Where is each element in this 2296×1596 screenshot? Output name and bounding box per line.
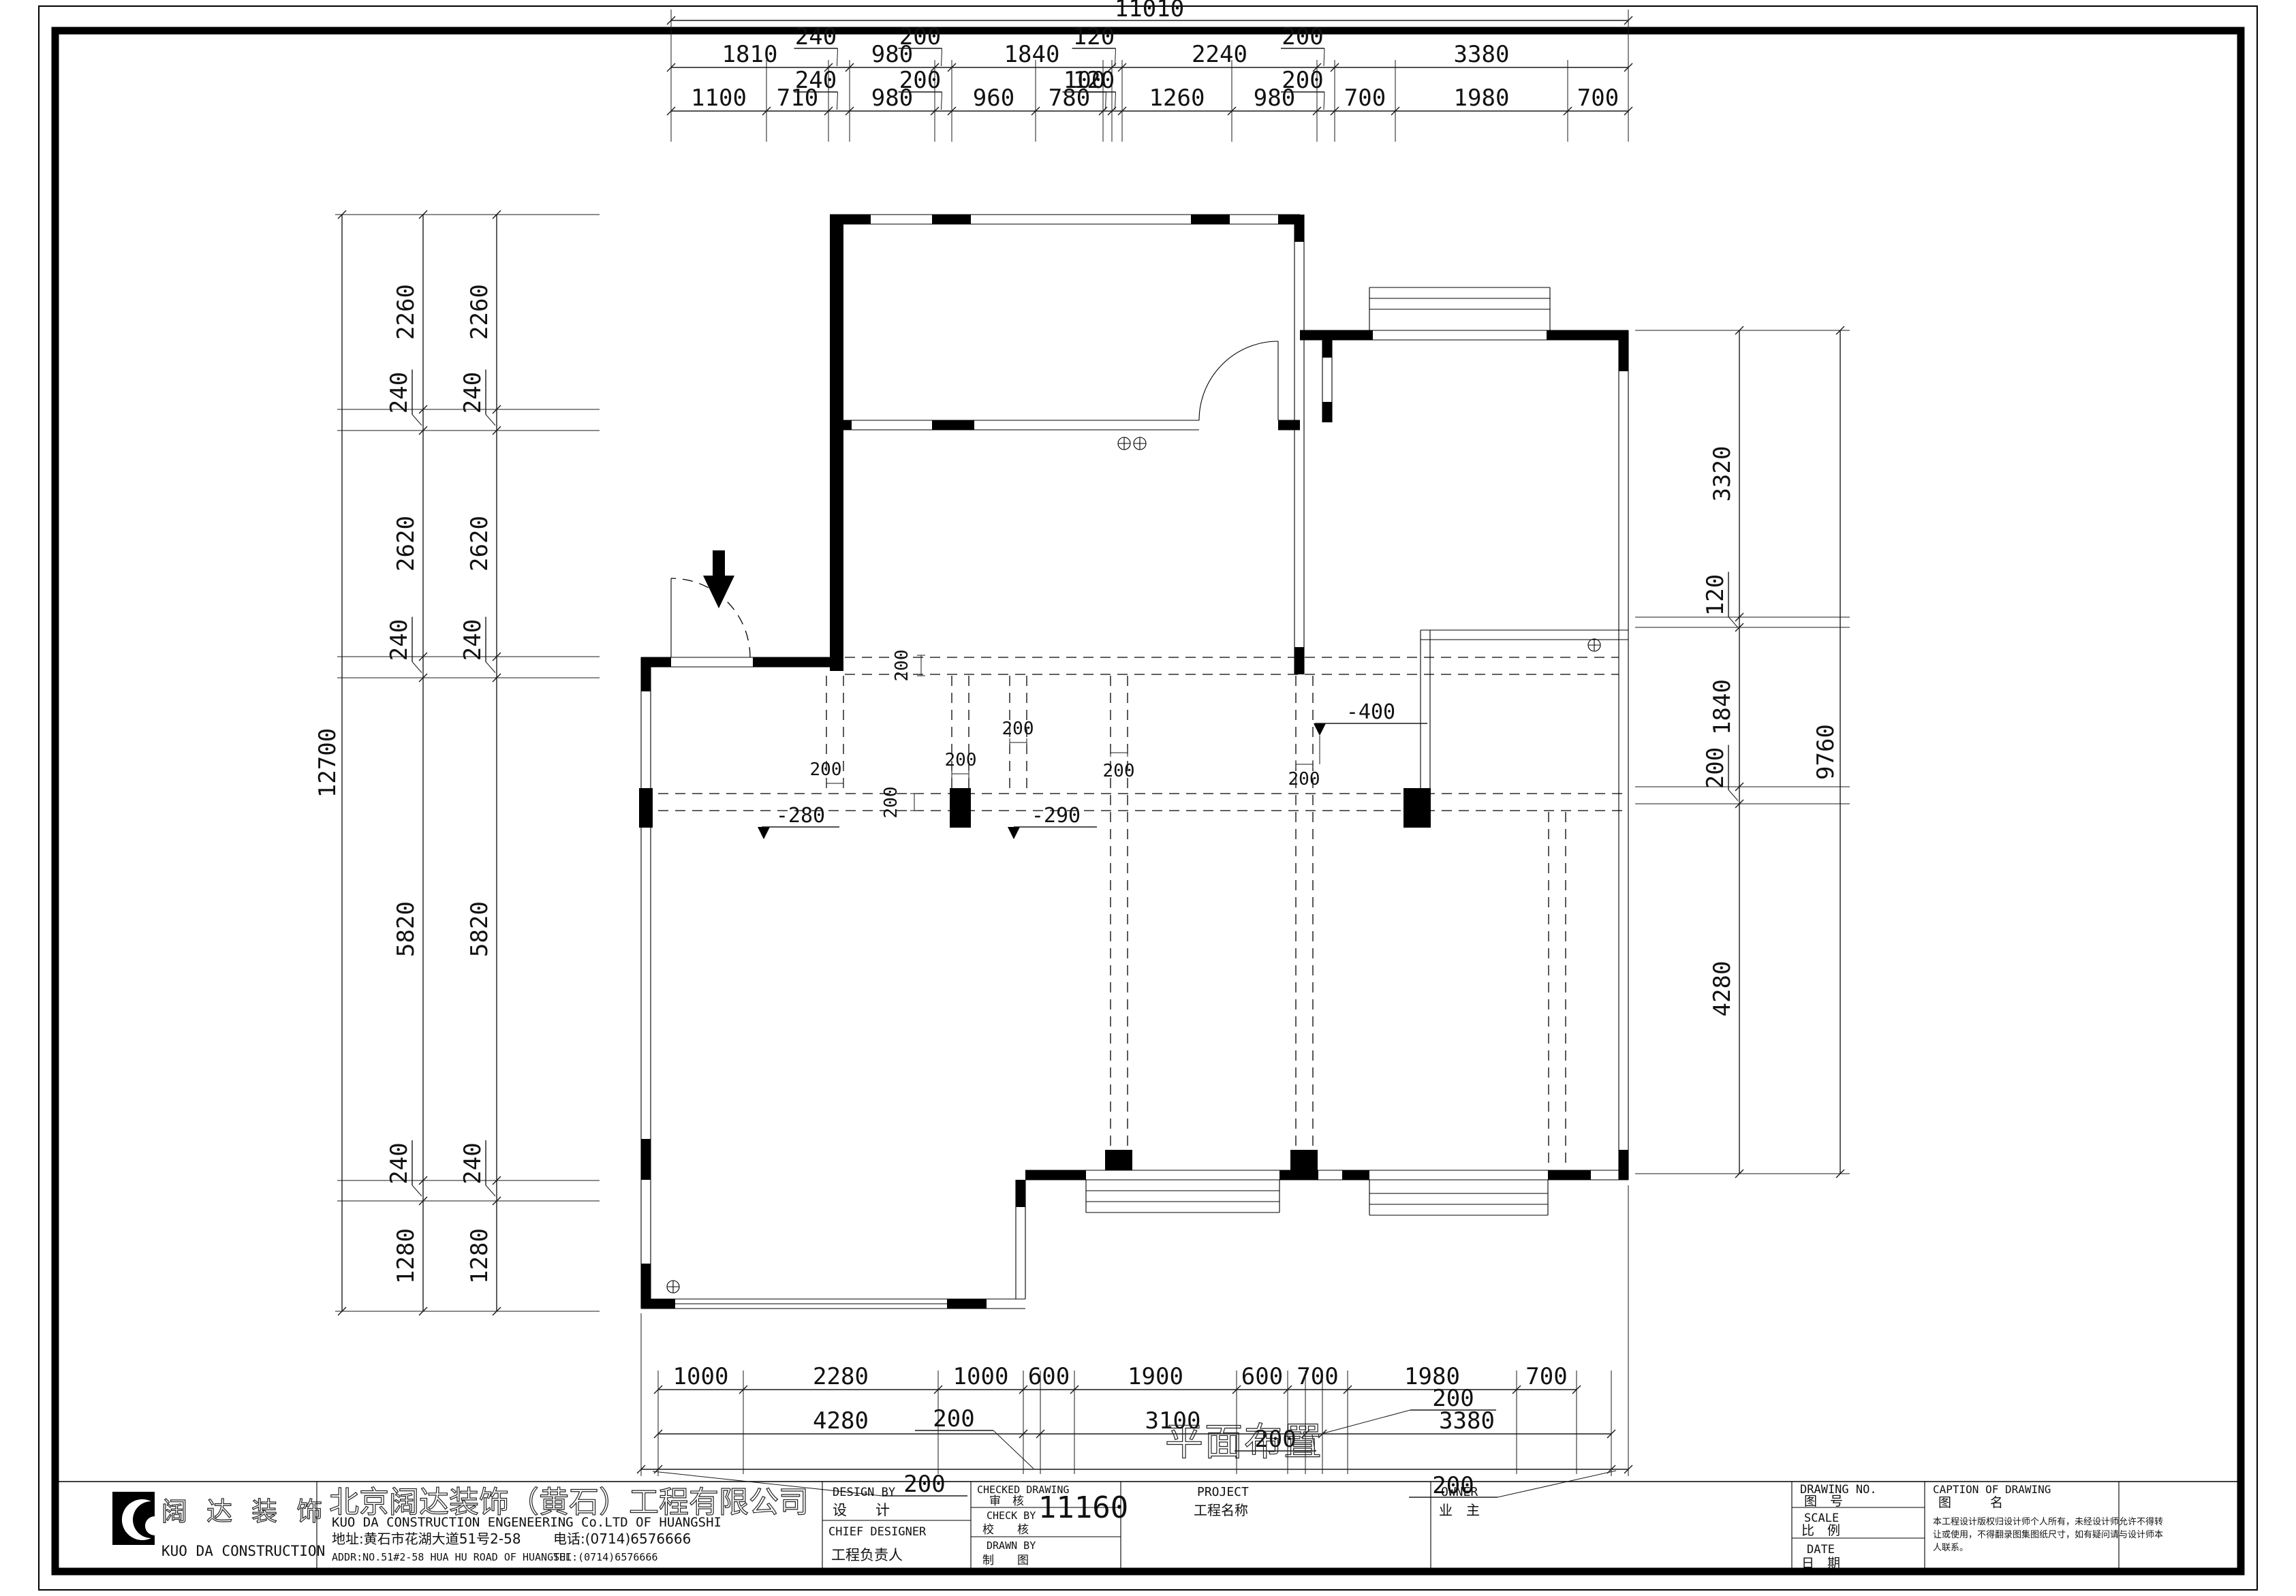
dim-label: 1000 bbox=[953, 1363, 1009, 1390]
dim-label: 5820 bbox=[466, 901, 493, 957]
dim-label: 1280 bbox=[466, 1228, 493, 1284]
company-address: 地址:黄石市花湖大道51号2-58 bbox=[332, 1531, 521, 1547]
dim-label: 240 bbox=[795, 67, 837, 94]
dim-label: 120 bbox=[1702, 574, 1729, 616]
gap-label: 200 bbox=[810, 760, 842, 780]
dim-label: 960 bbox=[973, 84, 1014, 112]
drawn-by-label-cn: 制 图 bbox=[982, 1554, 1029, 1567]
title-block: 阔 达 装 饰 KUO DA CONSTRUCTION 北京阔达装饰（黄石）工程… bbox=[55, 1482, 2241, 1571]
dim-label: 1840 bbox=[1709, 679, 1736, 735]
dim-label: 120 bbox=[1073, 67, 1115, 94]
socket-icon bbox=[1588, 639, 1600, 651]
dim-label: 240 bbox=[386, 372, 413, 413]
date-label: DATE bbox=[1807, 1543, 1835, 1556]
column bbox=[639, 788, 653, 828]
dim-label: 120 bbox=[1073, 23, 1115, 50]
column bbox=[950, 788, 971, 828]
chief-designer-label: CHIEF DESIGNER bbox=[828, 1525, 927, 1539]
dim-label: 12700 bbox=[314, 728, 341, 798]
dim-label: 200 bbox=[1702, 747, 1729, 789]
dim-label: 2280 bbox=[813, 1363, 869, 1390]
dim-label: 5820 bbox=[392, 901, 420, 957]
dim-label: 1280 bbox=[392, 1228, 420, 1284]
gap-label: 200 bbox=[881, 787, 901, 819]
interior-door-arc bbox=[1199, 341, 1278, 420]
dim-label: 11010 bbox=[1115, 0, 1184, 22]
company-phone-en: TEL:(0714)6576666 bbox=[553, 1551, 658, 1563]
chief-designer-label-cn: 工程负责人 bbox=[831, 1547, 903, 1563]
design-by-label: DESIGN BY bbox=[833, 1486, 895, 1499]
dim-label: 200 bbox=[1432, 1385, 1474, 1412]
floor-plan: -280 -290 -400 200 200 200 200 200 200 2… bbox=[639, 215, 1628, 1309]
dim-label: 2260 bbox=[392, 284, 420, 340]
caption-label: CAPTION OF DRAWING bbox=[1933, 1483, 2051, 1496]
caption-disclaimer: 人联系。 bbox=[1933, 1543, 1968, 1553]
drawing-no-label-cn: 图 号 bbox=[1804, 1494, 1843, 1509]
dim-label: 240 bbox=[459, 619, 486, 661]
dim-label: 2240 bbox=[1192, 41, 1247, 68]
dim-label: 9760 bbox=[1812, 724, 1840, 780]
owner-label: OWNER bbox=[1441, 1485, 1478, 1499]
check-by-label: CHECK BY bbox=[987, 1509, 1036, 1522]
dim-label: 1900 bbox=[1128, 1363, 1183, 1390]
dim-label: 1100 bbox=[691, 84, 747, 112]
level-label: -280 bbox=[776, 804, 825, 828]
dim-label: 240 bbox=[459, 372, 486, 413]
gap-label: 200 bbox=[1103, 761, 1135, 781]
company-phone: 电话:(0714)6576666 bbox=[553, 1531, 691, 1547]
gap-label: 200 bbox=[945, 750, 977, 770]
dim-label: 200 bbox=[1282, 23, 1323, 50]
caption-label-cn: 图 名 bbox=[1938, 1495, 2003, 1510]
dashed-beam-lines bbox=[641, 657, 1628, 1170]
caption-disclaimer: 本工程设计版权归设计师个人所有，未经设计师允许不得转 bbox=[1933, 1516, 2163, 1527]
company-address-en: ADDR:NO.51#2-58 HUA HU ROAD OF HUANGSHI bbox=[332, 1551, 572, 1563]
fixture-symbols bbox=[667, 437, 1600, 1293]
dim-label: 1000 bbox=[673, 1363, 729, 1390]
dim-label: 240 bbox=[386, 619, 413, 661]
dim-label: 1810 bbox=[722, 41, 778, 68]
dim-label: 2260 bbox=[466, 284, 493, 340]
column bbox=[1403, 788, 1431, 828]
column bbox=[1105, 1150, 1132, 1170]
socket-icon bbox=[1134, 437, 1146, 450]
socket-icon bbox=[667, 1281, 679, 1293]
dim-label: 240 bbox=[459, 1142, 486, 1184]
gap-label: 200 bbox=[892, 650, 912, 682]
bay-window-top bbox=[1369, 287, 1550, 340]
entry-arrow-icon bbox=[703, 550, 734, 608]
project-label-cn: 工程名称 bbox=[1194, 1502, 1248, 1518]
level-label: -400 bbox=[1346, 700, 1395, 724]
dim-label: 700 bbox=[1577, 84, 1619, 112]
wall bbox=[830, 215, 843, 671]
company-name-en: KUO DA CONSTRUCTION ENGENEERING Co.LTD O… bbox=[332, 1515, 722, 1530]
interior-gap-labels: 200 200 200 200 200 200 200 bbox=[810, 650, 1320, 819]
dim-label: 200 bbox=[899, 67, 941, 94]
dim-label: 3380 bbox=[1454, 41, 1510, 68]
dim-label: 600 bbox=[1241, 1363, 1283, 1390]
design-by-label-cn: 设 计 bbox=[833, 1502, 890, 1518]
drawn-by-label: DRAWN BY bbox=[987, 1539, 1036, 1552]
level-markers: -280 -290 -400 bbox=[758, 700, 1427, 839]
dim-label: 2620 bbox=[392, 516, 420, 572]
date-label-cn: 日 期 bbox=[1801, 1556, 1840, 1571]
logo-name: 阔 达 装 饰 bbox=[161, 1497, 328, 1527]
drawing-sheet: -280 -290 -400 200 200 200 200 200 200 2… bbox=[0, 0, 2296, 1596]
socket-icon bbox=[1118, 437, 1130, 450]
bay-window-bottom-left bbox=[1086, 1180, 1279, 1212]
gap-label: 200 bbox=[1002, 719, 1034, 739]
dim-label: 1260 bbox=[1149, 84, 1205, 112]
project-label: PROJECT bbox=[1197, 1485, 1249, 1499]
dim-label: 2620 bbox=[466, 516, 493, 572]
dim-label: 200 bbox=[899, 23, 941, 50]
dim-label: 1840 bbox=[1004, 41, 1060, 68]
dim-label: 700 bbox=[1297, 1363, 1338, 1390]
dim-label: 4280 bbox=[1709, 961, 1736, 1017]
sheet-border bbox=[39, 6, 2257, 1590]
dim-label: 240 bbox=[795, 23, 837, 50]
dim-label: 200 bbox=[933, 1405, 974, 1433]
plan-title: 平面布置 bbox=[1165, 1420, 1323, 1465]
dim-label: 600 bbox=[1028, 1363, 1070, 1390]
scale-label-cn: 比 例 bbox=[1801, 1523, 1840, 1538]
check-by-label-cn: 校 核 bbox=[982, 1523, 1029, 1537]
column bbox=[1290, 1150, 1318, 1170]
logo-name-en: KUO DA CONSTRUCTION bbox=[161, 1543, 325, 1559]
dim-label: 240 bbox=[386, 1142, 413, 1184]
level-label: -290 bbox=[1031, 804, 1081, 828]
dim-label: 700 bbox=[1525, 1363, 1567, 1390]
dim-label: 200 bbox=[1282, 67, 1323, 94]
caption-disclaimer: 让或使用，不得翻录图集图纸尺寸，如有疑问请与设计师本 bbox=[1933, 1529, 2163, 1540]
dim-label: 4280 bbox=[813, 1407, 869, 1435]
dim-label: 1980 bbox=[1454, 84, 1510, 112]
dim-label: 3320 bbox=[1709, 446, 1736, 502]
owner-label-cn: 业 主 bbox=[1439, 1502, 1480, 1518]
dim-label: 700 bbox=[1344, 84, 1386, 112]
gap-label: 200 bbox=[1288, 769, 1320, 789]
checked-drawing-label-cn: 审 核 bbox=[989, 1495, 1024, 1508]
company-logo-icon bbox=[112, 1492, 164, 1545]
floorplan-canvas: -280 -290 -400 200 200 200 200 200 200 2… bbox=[0, 0, 2296, 1596]
dimension-chains: 1101012700976018102409802001840120224020… bbox=[314, 0, 1850, 1476]
dim-label: 200 bbox=[903, 1471, 945, 1498]
bay-window-bottom-right bbox=[1369, 1180, 1548, 1215]
